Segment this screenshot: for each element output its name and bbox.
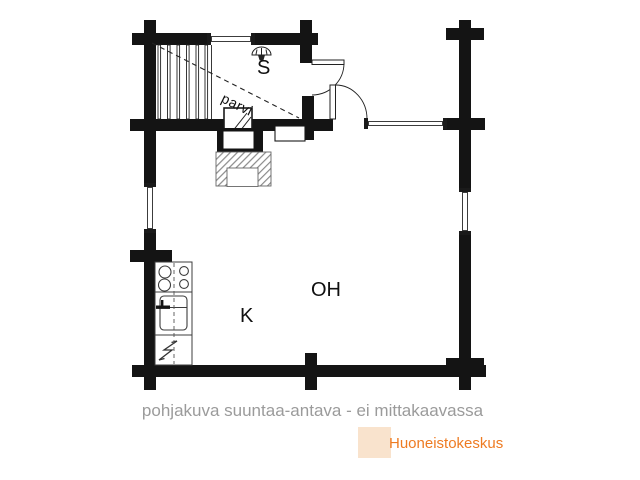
window-right [459,188,471,235]
logo-text: Huoneistokeskus [389,435,503,452]
entrance-door [330,85,367,119]
wall-top-left-segment [132,33,207,45]
sauna-door [312,60,344,95]
stove-burners-icon [159,266,189,291]
room-label-loft: parvi [219,90,256,119]
window-sauna-north [207,33,255,45]
wall-cross-stub-bottom-mid [305,353,317,390]
window-left [144,183,156,233]
stairs-to-loft-icon [158,45,212,119]
wall-cross-arm-left-kitchen [130,250,172,262]
wall-right-upper [459,20,471,188]
window-entrance [364,118,447,129]
fridge-lightning-icon [159,341,177,360]
wall-middle-right [443,118,485,130]
window-pane [368,121,443,126]
wall-sauna-east-upper [300,20,312,63]
wall-cross-arm-bottom-right [446,358,484,370]
window-pane [462,192,468,231]
fireplace-icon [216,152,271,187]
wall-sauna-east-stub [302,96,314,140]
window-pane [147,187,153,229]
wall-cross-arm-top-right [446,28,484,40]
floor-plan: S parvi K OH pohjakuva suuntaa-antava - … [0,0,640,480]
sink-icon [156,296,187,330]
logo-highlight-block [358,427,391,458]
window-pane [211,36,251,42]
room-label-living-room: OH [311,280,341,300]
kitchen-counter [155,262,192,365]
chimney-hearth-icon [217,128,263,152]
room-label-kitchen: K [240,306,253,326]
wall-middle [130,119,333,131]
disclaimer-caption: pohjakuva suuntaa-antava - ei mittakaava… [80,401,545,421]
room-label-sauna: S [257,58,270,78]
